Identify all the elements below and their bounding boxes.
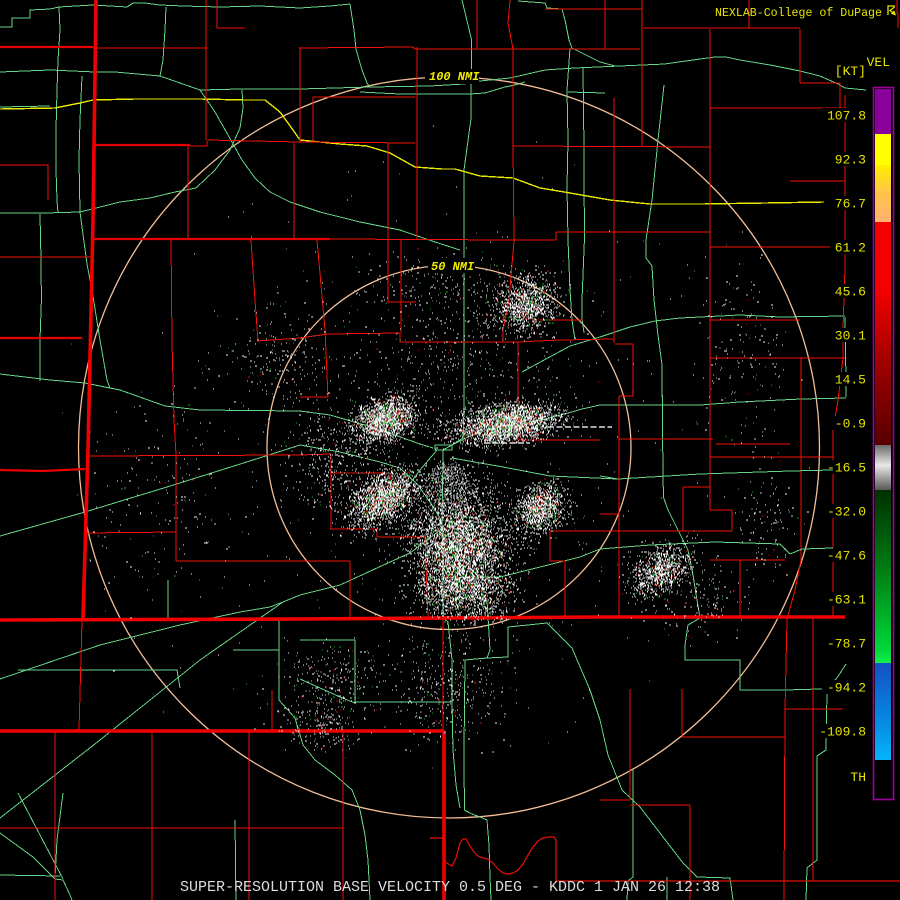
svg-text:TH: TH	[850, 770, 866, 785]
svg-text:76.7: 76.7	[835, 197, 866, 212]
svg-text:61.2: 61.2	[835, 241, 866, 256]
svg-text:-0.9: -0.9	[835, 417, 866, 432]
svg-text:NEXLAB-College of DuPage: NEXLAB-College of DuPage	[715, 7, 882, 20]
svg-text:-109.8: -109.8	[819, 725, 866, 740]
svg-text:-32.0: -32.0	[827, 505, 866, 520]
svg-text:-94.2: -94.2	[827, 681, 866, 696]
svg-text:-63.1: -63.1	[827, 593, 866, 608]
svg-text:107.8: 107.8	[827, 109, 866, 124]
svg-text:92.3: 92.3	[835, 153, 866, 168]
svg-text:50 NMI: 50 NMI	[431, 260, 475, 274]
svg-text:100 NMI: 100 NMI	[429, 70, 480, 84]
svg-text:45.6: 45.6	[835, 285, 866, 300]
svg-text:-47.6: -47.6	[827, 549, 866, 564]
svg-text:SUPER-RESOLUTION BASE VELOCITY: SUPER-RESOLUTION BASE VELOCITY 0.5 DEG -…	[180, 879, 720, 896]
svg-text:-16.5: -16.5	[827, 461, 866, 476]
svg-text:30.1: 30.1	[835, 329, 866, 344]
svg-text:14.5: 14.5	[835, 373, 866, 388]
svg-text:-78.7: -78.7	[827, 637, 866, 652]
svg-text:VEL: VEL	[867, 55, 890, 70]
svg-text:[KT]: [KT]	[835, 64, 866, 79]
